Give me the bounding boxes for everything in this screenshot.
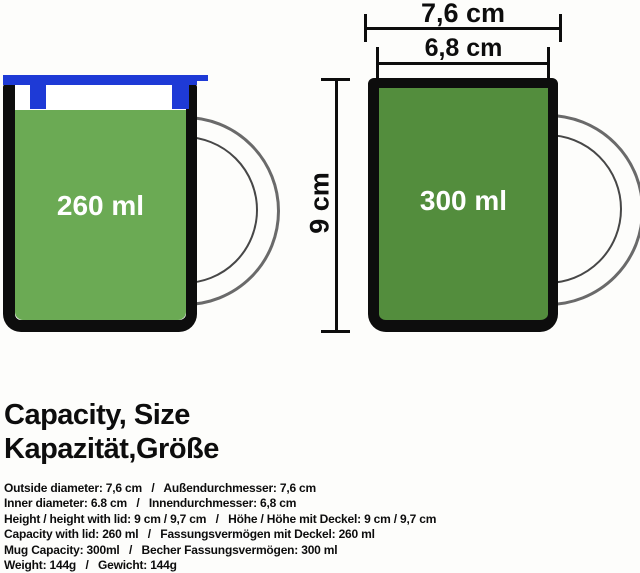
inner-diameter-tick-right xyxy=(547,47,550,78)
height-dimension-tick-bottom xyxy=(321,330,350,333)
inner-diameter-dimension-label: 6,8 cm xyxy=(377,36,550,61)
right-mug-body: 300 ml xyxy=(368,78,558,332)
spec-line-mug-capacity: Mug Capacity: 300ml / Becher Fassungsver… xyxy=(4,543,636,558)
inner-diameter-tick-left xyxy=(376,47,379,78)
spec-line-height: Height / height with lid: 9 cm / 9,7 cm … xyxy=(4,512,636,527)
spec-line-weight: Weight: 144g / Gewicht: 144g xyxy=(4,558,636,573)
height-dimension-label: 9 cm xyxy=(307,172,334,234)
lid-leg-right xyxy=(172,84,189,109)
outside-diameter-dimension-line xyxy=(365,27,561,30)
lid-leg-left xyxy=(30,84,46,109)
inner-diameter-dimension-line xyxy=(377,62,550,65)
title-german: Kapazität,Größe xyxy=(4,432,219,466)
title-english: Capacity, Size xyxy=(4,398,219,432)
specs-list: Outside diameter: 7,6 cm / Außendurchmes… xyxy=(4,481,636,573)
product-dimension-diagram: 7,6 cm 6,8 cm 9 cm 260 ml 300 ml xyxy=(0,0,640,395)
outside-diameter-dimension-label: 7,6 cm xyxy=(365,0,561,27)
height-dimension-line xyxy=(335,79,338,332)
outside-diameter-tick-right xyxy=(559,14,562,42)
left-mug-capacity-label: 260 ml xyxy=(57,190,144,222)
right-mug-capacity-label: 300 ml xyxy=(420,185,507,223)
spec-line-outside-diameter: Outside diameter: 7,6 cm / Außendurchmes… xyxy=(4,481,636,496)
outside-diameter-tick-left xyxy=(364,14,367,42)
height-dimension-tick-top xyxy=(321,78,350,81)
left-mug-fill: 260 ml xyxy=(15,110,186,320)
spec-line-capacity-with-lid: Capacity with lid: 260 ml / Fassungsverm… xyxy=(4,527,636,542)
lid-tab xyxy=(197,75,208,81)
spec-line-inner-diameter: Inner diameter: 6.8 cm / Innendurchmesse… xyxy=(4,496,636,511)
section-title: Capacity, Size Kapazität,Größe xyxy=(4,398,219,466)
left-mug-body: 260 ml xyxy=(3,84,197,332)
